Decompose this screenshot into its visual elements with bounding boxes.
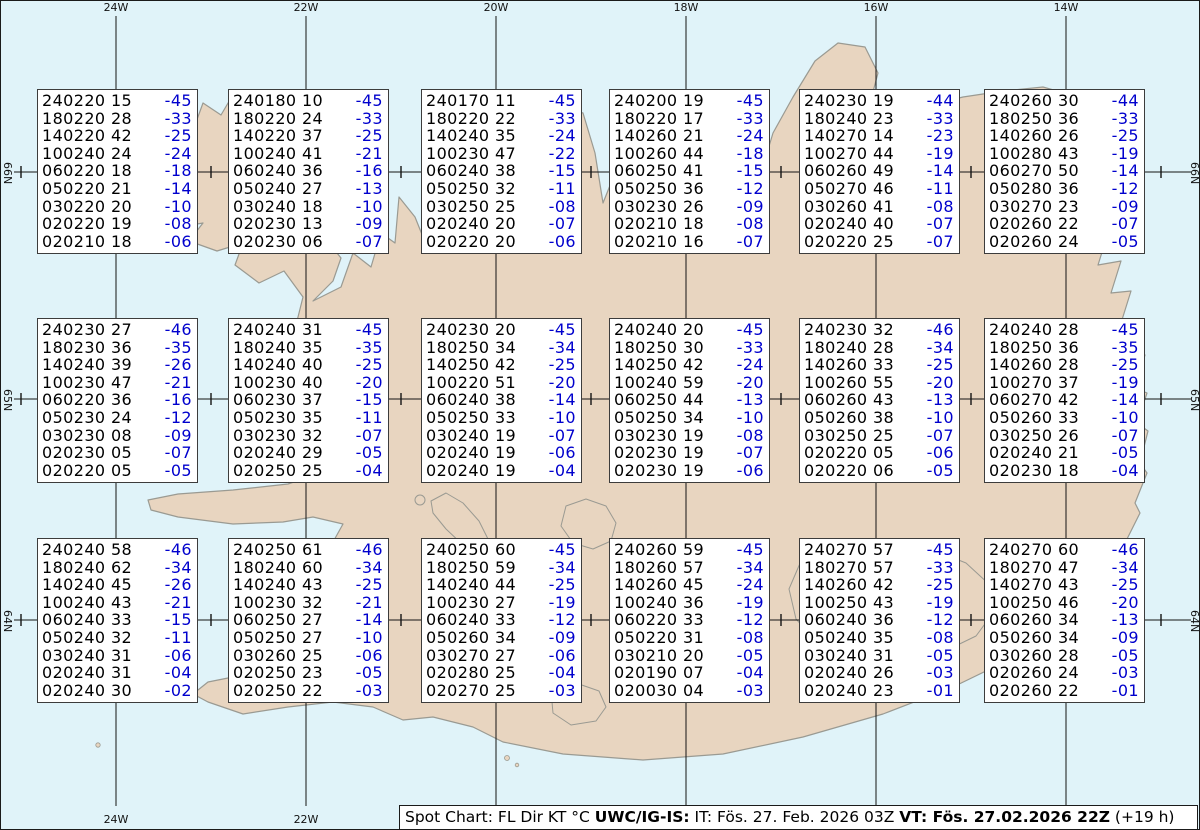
spot-wind-value: 020220 05	[804, 444, 894, 462]
spot-wind-value: 240220 15	[42, 92, 132, 110]
spot-box-r2c2: 240240 31-45180240 35-35140240 40-251002…	[228, 318, 389, 483]
spot-line: 020210 18-08	[614, 215, 764, 233]
spot-temp-value: -12	[165, 409, 192, 427]
spot-line: 030220 20-10	[42, 198, 192, 216]
spot-wind-value: 060240 36	[233, 162, 323, 180]
spot-wind-value: 180250 30	[614, 339, 704, 357]
spot-temp-value: -34	[549, 559, 576, 577]
latitude-label-left: 65N	[2, 389, 13, 411]
spot-temp-value: -09	[737, 198, 764, 216]
spot-box-r3c2: 240250 61-46180240 60-34140240 43-251002…	[228, 538, 389, 703]
spot-line: 030240 18-10	[233, 198, 383, 216]
spot-temp-value: -19	[1112, 374, 1139, 392]
spot-temp-value: -20	[356, 374, 383, 392]
spot-temp-value: -46	[927, 321, 954, 339]
spot-temp-value: -45	[927, 541, 954, 559]
spot-line: 060240 38-15	[426, 162, 576, 180]
spot-temp-value: -02	[165, 682, 192, 700]
spot-wind-value: 100230 47	[426, 145, 516, 163]
spot-line: 050240 32-11	[42, 629, 192, 647]
spot-wind-value: 060220 18	[42, 162, 132, 180]
spot-line: 100220 51-20	[426, 374, 576, 392]
spot-wind-value: 020260 22	[989, 215, 1079, 233]
spot-temp-value: -33	[927, 559, 954, 577]
spot-line: 240260 30-44	[989, 92, 1139, 110]
spot-line: 020220 06-05	[804, 462, 954, 480]
spot-wind-value: 240240 28	[989, 321, 1079, 339]
spot-line: 020220 20-06	[426, 233, 576, 251]
spot-line: 100230 32-21	[233, 594, 383, 612]
spot-line: 020270 25-03	[426, 682, 576, 700]
spot-box-r3c4: 240260 59-45180260 57-34140260 45-241002…	[609, 538, 770, 703]
spot-line: 140260 42-25	[804, 576, 954, 594]
spot-wind-value: 050240 32	[42, 629, 132, 647]
spot-temp-value: -45	[356, 321, 383, 339]
spot-line: 100240 24-24	[42, 145, 192, 163]
spot-line: 140240 44-25	[426, 576, 576, 594]
spot-line: 020240 29-05	[233, 444, 383, 462]
spot-temp-value: -20	[1112, 594, 1139, 612]
spot-line: 020220 05-06	[804, 444, 954, 462]
spot-line: 100230 47-22	[426, 145, 576, 163]
spot-temp-value: -10	[356, 629, 383, 647]
spot-wind-value: 180240 35	[233, 339, 323, 357]
spot-line: 020240 30-02	[42, 682, 192, 700]
spot-temp-value: -33	[737, 110, 764, 128]
spot-temp-value: -08	[549, 198, 576, 216]
spot-line: 050240 35-08	[804, 629, 954, 647]
spot-temp-value: -05	[1112, 647, 1139, 665]
spot-wind-value: 020230 06	[233, 233, 323, 251]
spot-line: 030230 08-09	[42, 427, 192, 445]
spot-temp-value: -06	[165, 233, 192, 251]
spot-wind-value: 020240 26	[804, 664, 894, 682]
spot-temp-value: -04	[549, 664, 576, 682]
latitude-label-left: 64N	[2, 610, 13, 632]
spot-line: 140240 35-24	[426, 127, 576, 145]
spot-temp-value: -05	[927, 647, 954, 665]
spot-line: 030250 26-07	[989, 427, 1139, 445]
spot-temp-value: -13	[356, 180, 383, 198]
spot-line: 030260 28-05	[989, 647, 1139, 665]
spot-temp-value: -09	[549, 629, 576, 647]
spot-line: 100240 36-19	[614, 594, 764, 612]
spot-temp-value: -08	[165, 215, 192, 233]
spot-wind-value: 180220 28	[42, 110, 132, 128]
spot-wind-value: 050220 21	[42, 180, 132, 198]
spot-line: 140240 40-25	[233, 356, 383, 374]
spot-temp-value: -25	[549, 576, 576, 594]
spot-wind-value: 060250 41	[614, 162, 704, 180]
spot-line: 180270 57-33	[804, 559, 954, 577]
spot-line: 140240 43-25	[233, 576, 383, 594]
spot-line: 180240 62-34	[42, 559, 192, 577]
spot-line: 020210 18-06	[42, 233, 192, 251]
spot-temp-value: -35	[356, 339, 383, 357]
spot-box-r2c4: 240240 20-45180250 30-33140250 42-241002…	[609, 318, 770, 483]
spot-box-r1c3: 240170 11-45180220 22-33140240 35-241002…	[421, 89, 582, 254]
spot-line: 180220 17-33	[614, 110, 764, 128]
spot-line: 140240 39-26	[42, 356, 192, 374]
spot-wind-value: 100230 32	[233, 594, 323, 612]
spot-wind-value: 180250 34	[426, 339, 516, 357]
spot-line: 030250 25-07	[804, 427, 954, 445]
spot-wind-value: 240270 57	[804, 541, 894, 559]
map-island	[515, 763, 519, 767]
spot-wind-value: 060260 43	[804, 391, 894, 409]
spot-temp-value: -34	[927, 339, 954, 357]
spot-temp-value: -20	[737, 374, 764, 392]
spot-temp-value: -10	[356, 198, 383, 216]
spot-temp-value: -10	[737, 409, 764, 427]
spot-line: 240270 60-46	[989, 541, 1139, 559]
spot-line: 100230 47-21	[42, 374, 192, 392]
spot-wind-value: 100240 43	[42, 594, 132, 612]
spot-wind-value: 240230 20	[426, 321, 516, 339]
spot-wind-value: 030230 19	[614, 427, 704, 445]
spot-wind-value: 050250 32	[426, 180, 516, 198]
spot-wind-value: 020220 25	[804, 233, 894, 251]
spot-line: 060240 36-12	[804, 611, 954, 629]
spot-temp-value: -07	[549, 427, 576, 445]
spot-line: 020240 19-06	[426, 444, 576, 462]
spot-wind-value: 240240 31	[233, 321, 323, 339]
spot-temp-value: -07	[1112, 427, 1139, 445]
spot-wind-value: 240260 30	[989, 92, 1079, 110]
spot-wind-value: 140260 42	[804, 576, 894, 594]
spot-wind-value: 180240 23	[804, 110, 894, 128]
spot-temp-value: -33	[165, 110, 192, 128]
spot-box-r1c6: 240260 30-44180250 36-33140260 26-251002…	[984, 89, 1145, 254]
spot-temp-value: -07	[1112, 215, 1139, 233]
spot-temp-value: -07	[549, 215, 576, 233]
spot-line: 060270 50-14	[989, 162, 1139, 180]
spot-wind-value: 020270 25	[426, 682, 516, 700]
spot-wind-value: 050260 38	[804, 409, 894, 427]
spot-wind-value: 140220 42	[42, 127, 132, 145]
spot-wind-value: 180260 57	[614, 559, 704, 577]
spot-temp-value: -07	[356, 427, 383, 445]
spot-wind-value: 050250 27	[233, 629, 323, 647]
spot-temp-value: -03	[1112, 664, 1139, 682]
spot-temp-value: -12	[549, 611, 576, 629]
spot-wind-value: 030230 08	[42, 427, 132, 445]
spot-wind-value: 240240 20	[614, 321, 704, 339]
spot-wind-value: 060260 49	[804, 162, 894, 180]
spot-temp-value: -05	[356, 664, 383, 682]
spot-temp-value: -11	[549, 180, 576, 198]
spot-line: 180220 22-33	[426, 110, 576, 128]
spot-wind-value: 030250 25	[804, 427, 894, 445]
spot-temp-value: -05	[1112, 233, 1139, 251]
spot-temp-value: -14	[1112, 391, 1139, 409]
spot-temp-value: -24	[737, 356, 764, 374]
longitude-label-bottom: 22W	[294, 814, 319, 826]
spot-line: 240200 19-45	[614, 92, 764, 110]
spot-wind-value: 100280 43	[989, 145, 1079, 163]
spot-wind-value: 050230 35	[233, 409, 323, 427]
spot-wind-value: 020030 04	[614, 682, 704, 700]
spot-wind-value: 240180 10	[233, 92, 323, 110]
spot-temp-value: -15	[737, 162, 764, 180]
spot-wind-value: 140260 21	[614, 127, 704, 145]
spot-line: 180230 36-35	[42, 339, 192, 357]
latitude-label-left: 66N	[2, 162, 13, 184]
spot-line: 100270 44-19	[804, 145, 954, 163]
spot-wind-value: 030250 25	[426, 198, 516, 216]
spot-line: 020190 07-04	[614, 664, 764, 682]
spot-wind-value: 020220 19	[42, 215, 132, 233]
spot-line: 060240 33-12	[426, 611, 576, 629]
spot-line: 050230 24-12	[42, 409, 192, 427]
spot-wind-value: 020240 20	[426, 215, 516, 233]
spot-temp-value: -34	[737, 559, 764, 577]
spot-wind-value: 140240 43	[233, 576, 323, 594]
spot-line: 060250 44-13	[614, 391, 764, 409]
spot-line: 020220 05-05	[42, 462, 192, 480]
spot-temp-value: -15	[165, 611, 192, 629]
spot-line: 050260 38-10	[804, 409, 954, 427]
spot-line: 180240 60-34	[233, 559, 383, 577]
spot-temp-value: -06	[356, 647, 383, 665]
spot-temp-value: -08	[927, 198, 954, 216]
spot-wind-value: 240240 58	[42, 541, 132, 559]
spot-line: 020260 22-01	[989, 682, 1139, 700]
spot-wind-value: 050250 36	[614, 180, 704, 198]
spot-temp-value: -06	[549, 444, 576, 462]
spot-temp-value: -33	[356, 110, 383, 128]
spot-wind-value: 100230 27	[426, 594, 516, 612]
spot-line: 240230 32-46	[804, 321, 954, 339]
spot-line: 030260 25-06	[233, 647, 383, 665]
spot-wind-value: 180250 36	[989, 110, 1079, 128]
spot-line: 060220 18-18	[42, 162, 192, 180]
spot-line: 140260 45-24	[614, 576, 764, 594]
spot-wind-value: 100270 37	[989, 374, 1079, 392]
spot-temp-value: -15	[549, 162, 576, 180]
spot-wind-value: 180240 28	[804, 339, 894, 357]
spot-temp-value: -25	[549, 356, 576, 374]
spot-wind-value: 020210 16	[614, 233, 704, 251]
spot-wind-value: 180220 22	[426, 110, 516, 128]
spot-line: 050270 46-11	[804, 180, 954, 198]
spot-wind-value: 140270 14	[804, 127, 894, 145]
spot-temp-value: -03	[549, 682, 576, 700]
spot-wind-value: 050250 33	[426, 409, 516, 427]
spot-wind-value: 050240 27	[233, 180, 323, 198]
spot-line: 140240 45-26	[42, 576, 192, 594]
spot-temp-value: -10	[927, 409, 954, 427]
spot-wind-value: 240230 32	[804, 321, 894, 339]
spot-wind-value: 030260 28	[989, 647, 1079, 665]
spot-line: 050260 34-09	[989, 629, 1139, 647]
spot-temp-value: -45	[1112, 321, 1139, 339]
spot-line: 060230 37-15	[233, 391, 383, 409]
spot-temp-value: -08	[737, 215, 764, 233]
spot-temp-value: -10	[549, 409, 576, 427]
spot-line: 060260 43-13	[804, 391, 954, 409]
spot-temp-value: -18	[165, 162, 192, 180]
spot-line: 240260 59-45	[614, 541, 764, 559]
spot-line: 050280 36-12	[989, 180, 1139, 198]
spot-temp-value: -07	[165, 444, 192, 462]
spot-line: 100240 59-20	[614, 374, 764, 392]
spot-temp-value: -25	[165, 127, 192, 145]
spot-wind-value: 020240 23	[804, 682, 894, 700]
latitude-label-right: 66N	[1189, 162, 1200, 184]
spot-temp-value: -19	[927, 145, 954, 163]
spot-wind-value: 020260 22	[989, 682, 1079, 700]
spot-line: 050220 21-14	[42, 180, 192, 198]
spot-temp-value: -22	[549, 145, 576, 163]
spot-wind-value: 050250 34	[614, 409, 704, 427]
spot-line: 020230 19-07	[614, 444, 764, 462]
spot-temp-value: -08	[737, 427, 764, 445]
spot-temp-value: -12	[1112, 180, 1139, 198]
spot-temp-value: -06	[549, 647, 576, 665]
spot-wind-value: 140250 42	[614, 356, 704, 374]
spot-temp-value: -23	[927, 127, 954, 145]
spot-box-r3c3: 240250 60-45180250 59-34140240 44-251002…	[421, 538, 582, 703]
spot-line: 030240 19-07	[426, 427, 576, 445]
spot-wind-value: 060270 42	[989, 391, 1079, 409]
spot-temp-value: -09	[165, 427, 192, 445]
spot-temp-value: -33	[549, 110, 576, 128]
spot-line: 060240 33-15	[42, 611, 192, 629]
spot-line: 100240 41-21	[233, 145, 383, 163]
spot-line: 030210 20-05	[614, 647, 764, 665]
spot-line: 140220 42-25	[42, 127, 192, 145]
spot-wind-value: 030270 27	[426, 647, 516, 665]
spot-line: 020250 23-05	[233, 664, 383, 682]
spot-temp-value: -34	[165, 559, 192, 577]
spot-box-r1c1: 240220 15-45180220 28-33140220 42-251002…	[37, 89, 198, 254]
spot-wind-value: 100220 51	[426, 374, 516, 392]
spot-wind-value: 240170 11	[426, 92, 516, 110]
spot-temp-value: -21	[356, 594, 383, 612]
spot-temp-value: -04	[165, 664, 192, 682]
spot-line: 020230 18-04	[989, 462, 1139, 480]
spot-temp-value: -05	[927, 462, 954, 480]
spot-line: 180220 28-33	[42, 110, 192, 128]
spot-temp-value: -06	[549, 233, 576, 251]
spot-box-r1c5: 240230 19-44180240 23-33140270 14-231002…	[799, 89, 960, 254]
spot-line: 020230 05-07	[42, 444, 192, 462]
spot-temp-value: -09	[1112, 629, 1139, 647]
spot-temp-value: -06	[927, 444, 954, 462]
spot-wind-value: 050220 31	[614, 629, 704, 647]
spot-line: 030270 27-06	[426, 647, 576, 665]
spot-temp-value: -05	[1112, 444, 1139, 462]
spot-wind-value: 020240 19	[426, 462, 516, 480]
spot-wind-value: 240230 27	[42, 321, 132, 339]
spot-line: 060260 34-13	[989, 611, 1139, 629]
spot-temp-value: -45	[549, 92, 576, 110]
spot-wind-value: 020230 05	[42, 444, 132, 462]
spot-wind-value: 140220 37	[233, 127, 323, 145]
spot-line: 180220 24-33	[233, 110, 383, 128]
spot-line: 030270 23-09	[989, 198, 1139, 216]
spot-line: 020240 20-07	[426, 215, 576, 233]
spot-line: 180250 30-33	[614, 339, 764, 357]
spot-line: 020220 25-07	[804, 233, 954, 251]
spot-line: 020240 40-07	[804, 215, 954, 233]
spot-temp-value: -21	[165, 594, 192, 612]
spot-wind-value: 140240 40	[233, 356, 323, 374]
spot-wind-value: 050280 36	[989, 180, 1079, 198]
spot-line: 100270 37-19	[989, 374, 1139, 392]
caption-model-id: UWC/IG-IS:	[595, 808, 690, 826]
spot-temp-value: -07	[356, 233, 383, 251]
spot-line: 060240 38-14	[426, 391, 576, 409]
spot-wind-value: 020240 31	[42, 664, 132, 682]
spot-wind-value: 100250 46	[989, 594, 1079, 612]
spot-wind-value: 030240 31	[804, 647, 894, 665]
spot-temp-value: -13	[737, 391, 764, 409]
spot-temp-value: -45	[165, 92, 192, 110]
spot-line: 140260 33-25	[804, 356, 954, 374]
spot-temp-value: -25	[356, 127, 383, 145]
spot-wind-value: 140270 43	[989, 576, 1079, 594]
spot-temp-value: -11	[927, 180, 954, 198]
spot-line: 030230 26-09	[614, 198, 764, 216]
spot-wind-value: 030230 26	[614, 198, 704, 216]
spot-wind-value: 180270 57	[804, 559, 894, 577]
spot-line: 240240 20-45	[614, 321, 764, 339]
spot-wind-value: 020230 19	[614, 444, 704, 462]
spot-wind-value: 060220 33	[614, 611, 704, 629]
spot-temp-value: -35	[1112, 339, 1139, 357]
spot-temp-value: -01	[1112, 682, 1139, 700]
longitude-label-top: 20W	[484, 2, 509, 14]
spot-temp-value: -44	[927, 92, 954, 110]
spot-line: 030240 31-05	[804, 647, 954, 665]
spot-temp-value: -25	[356, 356, 383, 374]
spot-line: 030250 25-08	[426, 198, 576, 216]
spot-line: 060220 36-16	[42, 391, 192, 409]
spot-chart-canvas: 24W22W20W18W16W14W24W22W66N66N65N65N64N6…	[0, 0, 1200, 830]
spot-temp-value: -20	[549, 374, 576, 392]
spot-temp-value: -14	[165, 180, 192, 198]
spot-temp-value: -04	[1112, 462, 1139, 480]
longitude-label-top: 16W	[864, 2, 889, 14]
spot-line: 240240 31-45	[233, 321, 383, 339]
spot-line: 100260 44-18	[614, 145, 764, 163]
spot-temp-value: -15	[356, 391, 383, 409]
spot-wind-value: 100230 40	[233, 374, 323, 392]
spot-wind-value: 240200 19	[614, 92, 704, 110]
spot-temp-value: -12	[737, 611, 764, 629]
spot-wind-value: 020260 24	[989, 664, 1079, 682]
spot-wind-value: 020280 25	[426, 664, 516, 682]
spot-wind-value: 030240 31	[42, 647, 132, 665]
spot-line: 020260 24-03	[989, 664, 1139, 682]
spot-line: 060260 49-14	[804, 162, 954, 180]
spot-temp-value: -33	[927, 110, 954, 128]
chart-caption: Spot Chart: FL Dir KT °C UWC/IG-IS: IT: …	[399, 805, 1198, 830]
spot-wind-value: 060240 38	[426, 162, 516, 180]
spot-wind-value: 050260 33	[989, 409, 1079, 427]
spot-wind-value: 180250 36	[989, 339, 1079, 357]
spot-wind-value: 100260 55	[804, 374, 894, 392]
spot-line: 050260 34-09	[426, 629, 576, 647]
spot-wind-value: 060250 44	[614, 391, 704, 409]
spot-temp-value: -35	[165, 339, 192, 357]
spot-temp-value: -45	[737, 321, 764, 339]
spot-temp-value: -19	[737, 594, 764, 612]
spot-wind-value: 140260 33	[804, 356, 894, 374]
spot-wind-value: 050270 46	[804, 180, 894, 198]
